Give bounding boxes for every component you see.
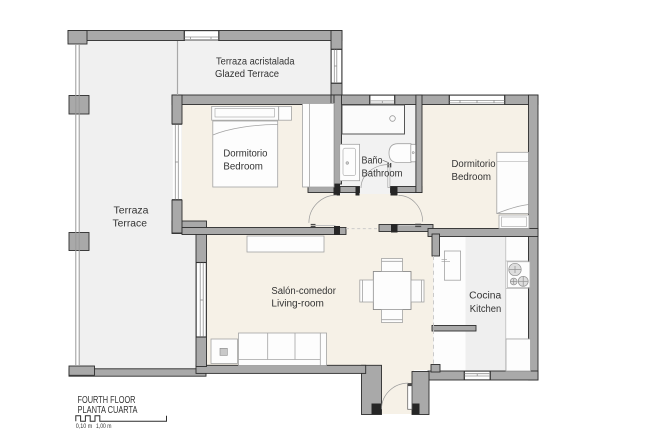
svg-text:Salón-comedor: Salón-comedor [271, 286, 336, 297]
svg-text:Terrace: Terrace [113, 219, 148, 230]
svg-text:Living-room: Living-room [271, 299, 324, 310]
svg-text:Bedroom: Bedroom [223, 162, 263, 173]
svg-text:Bathroom: Bathroom [362, 169, 403, 180]
svg-text:Baño: Baño [362, 156, 383, 167]
svg-text:Bedroom: Bedroom [452, 172, 492, 183]
svg-text:1,00 m: 1,00 m [96, 423, 112, 430]
svg-text:Terraza: Terraza [114, 206, 149, 217]
svg-text:Glazed Terrace: Glazed Terrace [215, 69, 279, 80]
svg-text:Dormitorio: Dormitorio [223, 149, 267, 160]
svg-text:Dormitorio: Dormitorio [452, 159, 496, 170]
svg-text:Terraza acristalada: Terraza acristalada [216, 57, 295, 68]
svg-text:PLANTA CUARTA: PLANTA CUARTA [78, 404, 138, 416]
svg-text:0,10 m: 0,10 m [76, 423, 93, 430]
svg-text:Kitchen: Kitchen [470, 304, 502, 315]
svg-text:Cocina: Cocina [469, 291, 501, 302]
